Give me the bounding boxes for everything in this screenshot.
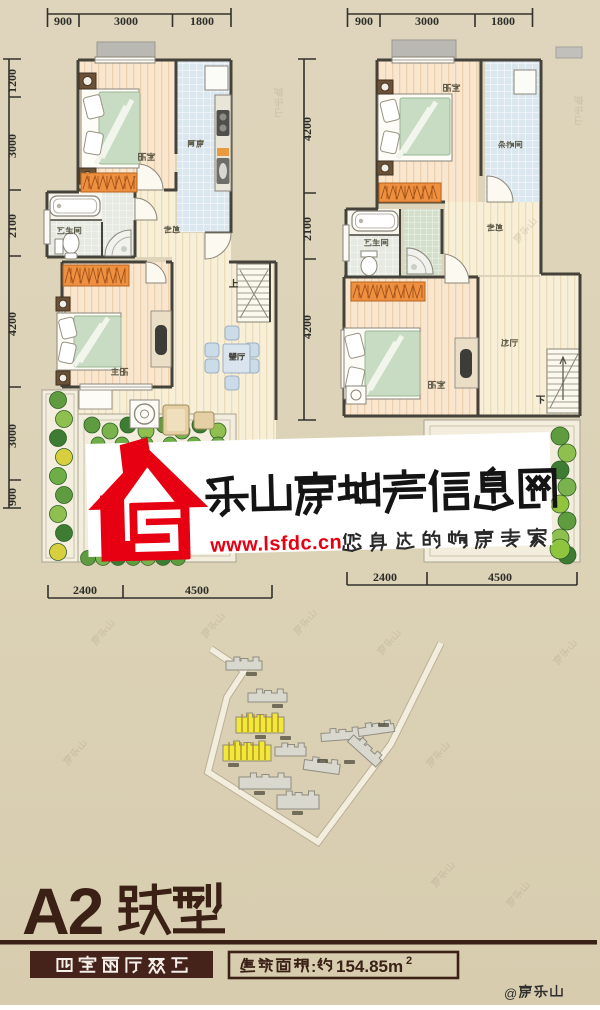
svg-text:1800: 1800 <box>491 14 515 28</box>
svg-text:900: 900 <box>54 14 72 28</box>
svg-text:2400: 2400 <box>73 583 97 597</box>
svg-text:154.85m: 154.85m <box>336 957 403 976</box>
svg-text:1800: 1800 <box>190 14 214 28</box>
svg-text:4200: 4200 <box>5 312 19 336</box>
svg-text:3000: 3000 <box>5 134 19 158</box>
svg-text:2100: 2100 <box>5 214 19 238</box>
svg-text:2: 2 <box>406 955 412 967</box>
svg-text:3000: 3000 <box>114 14 138 28</box>
svg-text:4500: 4500 <box>185 583 209 597</box>
svg-text:900: 900 <box>355 14 373 28</box>
svg-text:4200: 4200 <box>300 315 314 339</box>
svg-text:3000: 3000 <box>5 424 19 448</box>
svg-text:2100: 2100 <box>300 217 314 241</box>
svg-text:A2: A2 <box>22 874 103 948</box>
svg-text:1200: 1200 <box>5 69 19 93</box>
svg-text:2400: 2400 <box>373 570 397 584</box>
svg-text:4200: 4200 <box>300 117 314 141</box>
svg-text::: : <box>311 959 316 976</box>
svg-text:@: @ <box>504 986 517 1001</box>
svg-text:3000: 3000 <box>415 14 439 28</box>
svg-text:900: 900 <box>5 488 19 506</box>
svg-text:www.lsfdc.cn: www.lsfdc.cn <box>209 531 342 556</box>
svg-text:4500: 4500 <box>488 570 512 584</box>
